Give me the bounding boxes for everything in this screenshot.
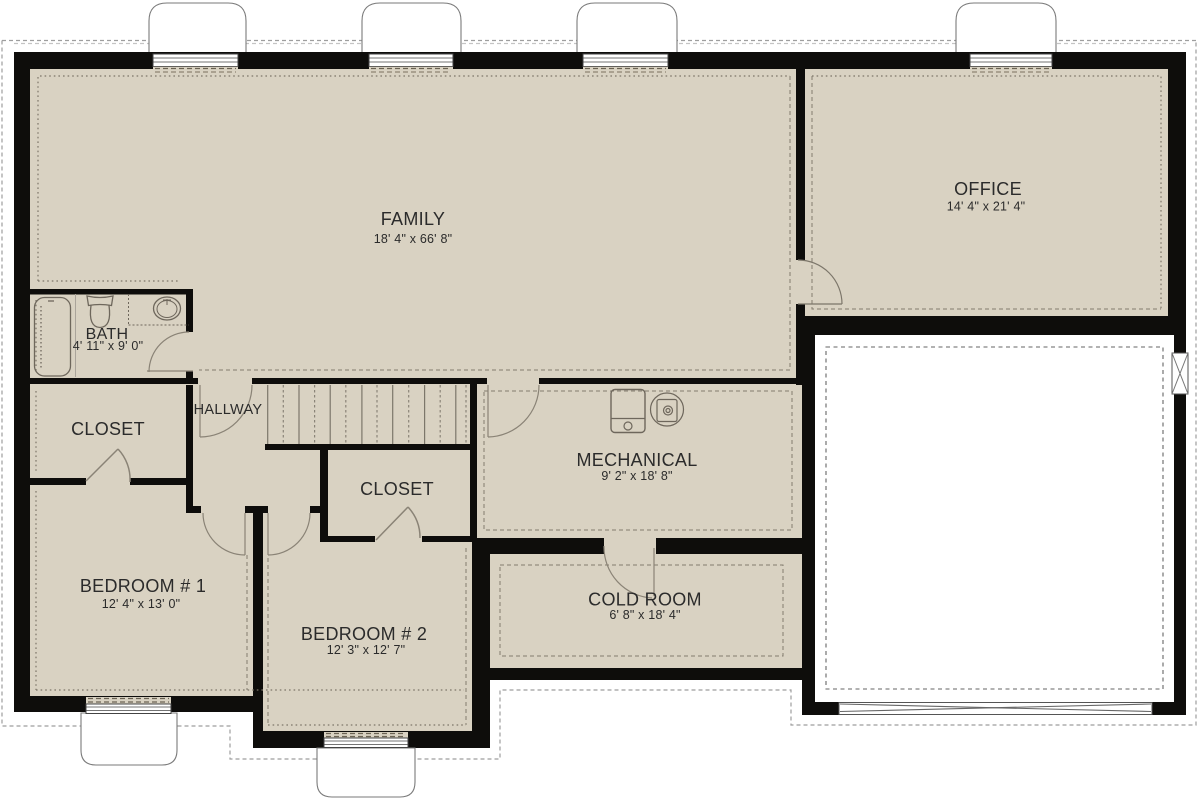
svg-text:BEDROOM # 1: BEDROOM # 1 <box>80 576 206 596</box>
svg-text:12' 3" x 12' 7": 12' 3" x 12' 7" <box>327 643 406 657</box>
svg-text:COLD ROOM: COLD ROOM <box>588 590 702 610</box>
svg-text:CLOSET: CLOSET <box>71 419 145 439</box>
svg-text:18' 4" x 66' 8": 18' 4" x 66' 8" <box>374 232 453 246</box>
svg-text:FAMILY: FAMILY <box>381 209 445 229</box>
svg-text:12' 4" x 13' 0": 12' 4" x 13' 0" <box>102 597 181 611</box>
svg-text:6' 8" x 18' 4": 6' 8" x 18' 4" <box>609 608 680 622</box>
svg-text:9' 2" x 18' 8": 9' 2" x 18' 8" <box>601 469 672 483</box>
svg-text:4' 11" x 9' 0": 4' 11" x 9' 0" <box>73 339 143 353</box>
svg-text:HALLWAY: HALLWAY <box>194 402 263 418</box>
svg-text:BEDROOM # 2: BEDROOM # 2 <box>301 624 427 644</box>
svg-text:MECHANICAL: MECHANICAL <box>576 450 697 470</box>
svg-text:CLOSET: CLOSET <box>360 479 434 499</box>
svg-text:14' 4" x 21' 4": 14' 4" x 21' 4" <box>947 200 1026 214</box>
svg-text:OFFICE: OFFICE <box>954 179 1022 199</box>
